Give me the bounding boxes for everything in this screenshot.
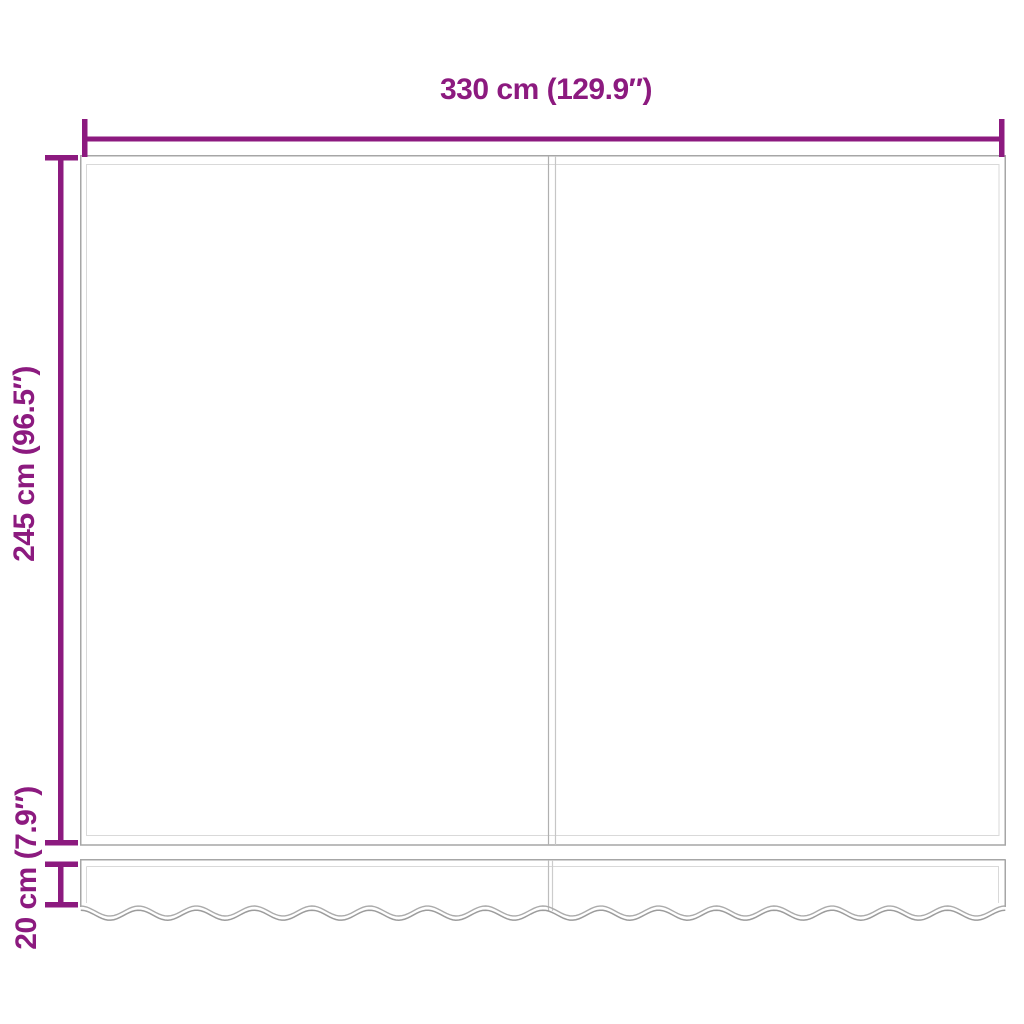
fabric-panel [81,156,1006,845]
dimension-marks [45,119,1005,908]
width-dimension-label: 330 cm (129.9″) [440,75,652,105]
valance-dimension-tick-bottom [45,902,78,908]
fabric-panel-outline [81,156,1006,845]
valance-dimension-label: 20 cm (7.9″) [12,786,42,949]
diagram-canvas: 330 cm (129.9″) 245 cm (96.5″) 20 cm (7.… [0,0,1024,1024]
width-dimension-tick-left [82,119,88,157]
height-dimension-tick-top [45,155,78,161]
height-dimension-line [58,157,64,843]
height-dimension-tick-bottom [45,840,78,846]
awning-diagram [0,0,1024,1024]
width-dimension-tick-right [999,119,1005,157]
valance-wave-edge-upper [81,906,1006,916]
height-dimension-label: 245 cm (96.5″) [10,366,40,562]
valance-dimension-line [58,864,64,905]
fabric-panel-hem-line [87,165,1000,836]
valance-dimension-tick-top [45,862,78,868]
valance [80,860,1006,920]
width-dimension-line [84,137,1002,142]
